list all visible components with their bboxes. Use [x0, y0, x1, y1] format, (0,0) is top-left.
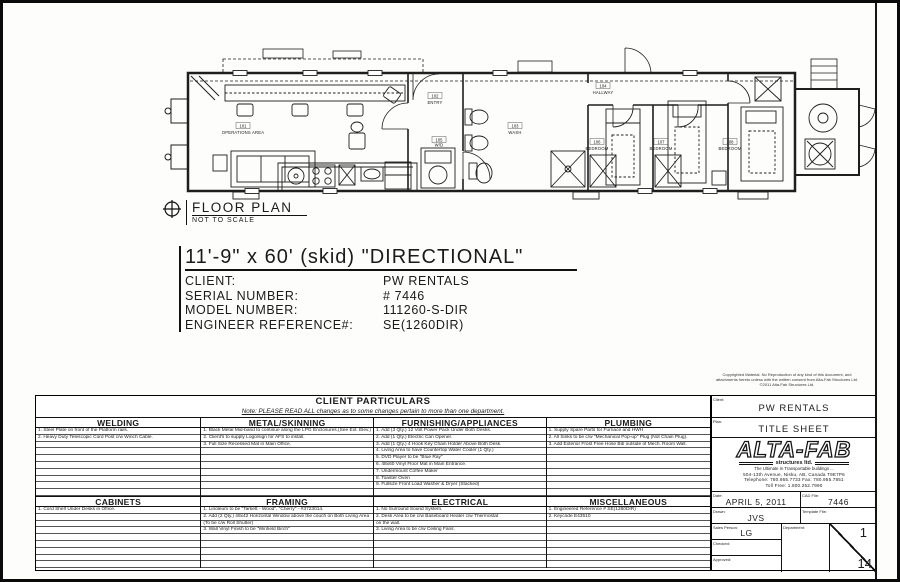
particulars-row: 3. Wall Vinyl Finish to be "Winfield Bir… [201, 527, 373, 534]
title-block-logo-row: ALTA-FAB structures ltd. The Ultimate In… [712, 438, 876, 492]
sheet-total: 14 [858, 556, 872, 571]
closets [590, 77, 781, 187]
particulars-row: 1. Cord Shelf Under Desks in Office. [36, 507, 200, 514]
section-header: CABINETS [36, 496, 200, 507]
field-row: SERIAL NUMBER: # 7446 [185, 289, 579, 304]
section-rows: 1. Add (3 Qty.) 12 Volt Power Pack Under… [374, 428, 546, 496]
section-rows: 1. Linoleum to be "Tarkett - Wood", "Che… [201, 507, 373, 568]
particulars-section-welding: WELDING 1. Steel Plate on front of the P… [36, 417, 200, 496]
floor-plan-drawing: 101 OPERATIONS AREA 102 ENTRY 103 WASH 1… [163, 43, 879, 223]
particulars-row: 1. No Surround Sound System. [374, 507, 546, 514]
particulars-note: Note: PLEASE READ ALL changes as to some… [36, 408, 710, 417]
room-number: 107 [658, 139, 666, 144]
particulars-row: 2. Add (1 Qty.) Electric Can Opener. [374, 435, 546, 442]
section-rows: 1. Engineered Reference # SE(1260DIR)2. … [547, 507, 710, 568]
section-header: WELDING [36, 417, 200, 428]
particulars-row [201, 489, 373, 496]
beds [606, 101, 783, 185]
particulars-row: 6. 48x60 Vinyl Floor Mat in Main Entranc… [374, 462, 546, 469]
particulars-row: 5. DVD Player to be "Blue Ray" [374, 455, 546, 462]
particulars-row [36, 482, 200, 489]
particulars-band-top: WELDING 1. Steel Plate on front of the P… [36, 417, 710, 496]
particulars-row [201, 455, 373, 462]
particulars-row: on the wall. [374, 521, 546, 528]
plan-scale-note: NOT TO SCALE [192, 216, 307, 225]
particulars-section-furnishing: FURNISHING/APPLIANCES 1. Add (3 Qty.) 12… [373, 417, 546, 496]
particulars-row [547, 541, 710, 548]
field-label: ENGINEER REFERENCE#: [185, 318, 383, 333]
field-value: PW RENTALS [383, 274, 469, 289]
bed-108 [741, 107, 783, 181]
stove [309, 165, 335, 187]
particulars-row [547, 462, 710, 469]
particulars-row [374, 555, 546, 562]
field-value: SE(1260DIR) [383, 318, 464, 333]
particulars-row: 4. Living Area to have Countertop Water … [374, 448, 546, 455]
sales-person-label: Sales Person: [713, 525, 738, 530]
checked-label: Checked: [713, 541, 730, 546]
particulars-row [36, 561, 200, 568]
washer-dryer-stack [421, 148, 455, 188]
particulars-row [201, 469, 373, 476]
particulars-row [201, 555, 373, 562]
particulars-row: 1. Linoleum to be "Tarkett - Wood", "Che… [201, 507, 373, 514]
particulars-section-framing: FRAMING 1. Linoleum to be "Tarkett - Woo… [200, 496, 373, 568]
particulars-row [374, 548, 546, 555]
particulars-row: 2. Heavy Duty Telescopic Cord Post c/w W… [36, 435, 200, 442]
particulars-row [36, 455, 200, 462]
room-number: 104 [600, 83, 608, 88]
logo-rule [739, 462, 773, 465]
room-labels: 101 OPERATIONS AREA 102 ENTRY 103 WASH 1… [222, 83, 742, 152]
particulars-row [547, 521, 710, 528]
room-number: 102 [432, 93, 440, 98]
sheet-number: 1 [860, 525, 867, 540]
bed-106 [606, 109, 640, 185]
sales-person-cell: Sales Person: LG [712, 524, 781, 540]
particulars-row [36, 541, 200, 548]
section-header: FURNISHING/APPLIANCES [374, 417, 546, 428]
particulars-section-miscellaneous: MISCELLANEOUS 1. Engineered Reference # … [546, 496, 710, 568]
field-label: SERIAL NUMBER: [185, 289, 383, 304]
section-rows: 1. Black Metal Mid-band to continue alon… [201, 428, 373, 496]
logo-rule [815, 462, 849, 465]
room-number: 106 [594, 139, 602, 144]
particulars-row [36, 442, 200, 449]
section-header: ELECTRICAL [374, 496, 546, 507]
room-name: WASH [508, 130, 521, 135]
department-label: Department: [783, 525, 805, 530]
title-block-drawn-row: Drawn: JVS Template File: [712, 508, 876, 524]
particulars-section-cabinets: CABINETS 1. Cord Shelf Under Desks in Of… [36, 496, 200, 568]
particulars-row [36, 548, 200, 555]
particulars-row [374, 561, 546, 568]
particulars-row [36, 476, 200, 483]
particulars-row [547, 548, 710, 555]
particulars-row [36, 527, 200, 534]
room-number: 108 [727, 139, 735, 144]
title-block: Client: PW RENTALS Plan: TITLE SHEET ALT… [711, 395, 877, 571]
particulars-row: 1. Add (3 Qty.) 12 Volt Power Pack Under… [374, 428, 546, 435]
particulars-row: 3. Full Size Recessed Mat in Main Office… [201, 442, 373, 449]
section-rows: 1. Cord Shelf Under Desks in Office. [36, 507, 200, 568]
copyright-line: ©2011 Alta-Fab Structures Ltd. [697, 382, 877, 387]
drawn-cell: Drawn: JVS [712, 508, 800, 523]
particulars-section-metal-skinning: METAL/SKINNING 1. Black Metal Mid-band t… [200, 417, 373, 496]
particulars-row [547, 561, 710, 568]
field-row: MODEL NUMBER: 111260-S-DIR [185, 303, 579, 318]
mech-room-equipment [805, 104, 837, 169]
plan-value: TITLE SHEET [712, 418, 876, 435]
particulars-row [201, 561, 373, 568]
kitchen [278, 162, 417, 190]
drawn-label: Drawn: [713, 509, 726, 514]
particulars-row: 1. Black Metal Mid-band to continue alon… [201, 428, 373, 435]
template-file-cell: Template File: [800, 508, 876, 523]
particulars-row [201, 462, 373, 469]
room-name: BEDROOM [718, 146, 741, 151]
plan-caption: FLOOR PLAN NOT TO SCALE [163, 200, 307, 225]
date-label: Date: [713, 493, 723, 498]
particulars-row [374, 489, 546, 496]
checked-cell: Checked: [712, 540, 781, 556]
altafab-logo: ALTA-FAB [737, 439, 852, 461]
sheet-title: 11'-9" x 60' (skid) "DIRECTIONAL" [185, 246, 577, 271]
particulars-row: 1. Steel Plate on front of the Platform … [36, 428, 200, 435]
particulars-row [201, 548, 373, 555]
field-row: CLIENT: PW RENTALS [185, 274, 579, 289]
particulars-section-plumbing: PLUMBING 1. Supply Spare Parts for Furna… [546, 417, 710, 496]
particulars-row [547, 455, 710, 462]
north-crosshair-icon [163, 200, 181, 218]
date-value: APRIL 5, 2011 [712, 492, 800, 507]
particulars-row [201, 482, 373, 489]
interior-walls [408, 74, 728, 190]
particulars-row: 1. Engineered Reference # SE(1260DIR) [547, 507, 710, 514]
particulars-row: 8. Toaster Oven [374, 476, 546, 483]
company-tollfree: Toll Free: 1.800.252.7990 [712, 483, 876, 489]
particulars-row: 9. Fullsize Front Load Washer & Dryer (S… [374, 482, 546, 489]
particulars-row [547, 534, 710, 541]
department-cell: Department: [782, 524, 830, 572]
template-file-label: Template File: [802, 509, 827, 514]
particulars-row: 3. Add (1 Qty.) 4 Hook Key Chain Holder … [374, 442, 546, 449]
roof-items [223, 49, 837, 89]
room-number: 101 [240, 123, 248, 128]
particulars-row [36, 514, 200, 521]
particulars-row: 3. Living Area to be c/w Ceiling Fans. [374, 527, 546, 534]
drawing-sheet: 101 OPERATIONS AREA 102 ENTRY 103 WASH 1… [0, 0, 900, 582]
field-row: ENGINEER REFERENCE#: SE(1260DIR) [185, 318, 579, 333]
particulars-row [374, 534, 546, 541]
room-name: HALLWAY [593, 90, 614, 95]
particulars-row [36, 534, 200, 541]
hitch-and-platform [165, 76, 219, 169]
title-block-bottom-rows: Sales Person: LG Checked: Approved: Depa… [712, 524, 876, 572]
title-block-date-row: Date: APRIL 5, 2011 CAD File: 7446 [712, 492, 876, 508]
particulars-row [547, 448, 710, 455]
particulars-title: CLIENT PARTICULARS [36, 396, 710, 408]
particulars-section-electrical: ELECTRICAL 1. No Surround Sound System.2… [373, 496, 546, 568]
client-label: Client: [713, 397, 724, 402]
room-name: BEDROOM [585, 146, 608, 151]
section-rows: 1. No Surround Sound System.2. Desk Area… [374, 507, 546, 568]
particulars-band-bottom: CABINETS 1. Cord Shelf Under Desks in Of… [36, 496, 710, 568]
particulars-row: 7. Undermount Coffee Maker [374, 469, 546, 476]
particulars-row [547, 555, 710, 562]
particulars-row [547, 489, 710, 496]
particulars-row: (To be c/w Roll Shutter) [201, 521, 373, 528]
title-block-plan-row: Plan: TITLE SHEET [712, 418, 876, 438]
room-name: W/D [435, 143, 444, 148]
room-number: 103 [512, 123, 520, 128]
bed-107 [668, 101, 706, 183]
particulars-row: 2. Desk Area to be c/w Baseboard Heater … [374, 514, 546, 521]
room-name: BEDROOM [649, 146, 672, 151]
particulars-row: 2. Add (2 Qty.) 48x42 Horizontal Window … [201, 514, 373, 521]
field-label: MODEL NUMBER: [185, 303, 383, 318]
fridge [385, 162, 411, 189]
cad-file-label: CAD File: [802, 493, 819, 498]
sheet-number-box: 1 14 [830, 524, 876, 572]
section-header: PLUMBING [547, 417, 710, 428]
particulars-row [36, 555, 200, 562]
room-name: OPERATIONS AREA [222, 130, 264, 135]
particulars-row [201, 534, 373, 541]
particulars-row [201, 476, 373, 483]
date-cell: Date: APRIL 5, 2011 [712, 492, 800, 507]
title-block-client-row: Client: PW RENTALS [712, 396, 876, 418]
approved-label: Approved: [713, 557, 731, 562]
room-name: ENTRY [427, 100, 442, 105]
client-particulars-table: CLIENT PARTICULARS Note: PLEASE READ ALL… [35, 395, 711, 571]
section-header: METAL/SKINNING [201, 417, 373, 428]
title-section: 11'-9" x 60' (skid) "DIRECTIONAL" CLIENT… [179, 246, 579, 332]
client-value: PW RENTALS [712, 396, 876, 414]
sheet-inner-border [875, 3, 877, 579]
particulars-row [36, 462, 200, 469]
field-value: # 7446 [383, 289, 425, 304]
field-label: CLIENT: [185, 274, 383, 289]
copyright-note: Copyrighted Material. No Reproduction of… [697, 372, 877, 387]
plan-caption-title: FLOOR PLAN [192, 200, 307, 216]
particulars-row [547, 527, 710, 534]
approved-cell: Approved: [712, 556, 781, 572]
particulars-row [374, 541, 546, 548]
particulars-row [201, 448, 373, 455]
plan-label: Plan: [713, 419, 722, 424]
particulars-row: 1. Supply Spare Parts for Furnace and HW… [547, 428, 710, 435]
particulars-row [36, 521, 200, 528]
particulars-row: 2. Client's to supply Logo/sign for AFS … [201, 435, 373, 442]
cad-file-cell: CAD File: 7446 [800, 492, 876, 507]
furnace [809, 104, 837, 132]
section-header: FRAMING [201, 496, 373, 507]
particulars-row [547, 482, 710, 489]
windows [233, 71, 717, 194]
particulars-row [547, 476, 710, 483]
section-header: MISCELLANEOUS [547, 496, 710, 507]
particulars-row [36, 489, 200, 496]
steps [233, 192, 768, 199]
particulars-row [36, 469, 200, 476]
particulars-row: 2. Keycode E43510 [547, 514, 710, 521]
particulars-row [547, 469, 710, 476]
section-rows: 1. Supply Spare Parts for Furnace and HW… [547, 428, 710, 496]
section-rows: 1. Steel Plate on front of the Platform … [36, 428, 200, 496]
field-value: 111260-S-DIR [383, 303, 468, 318]
washroom-fixtures [465, 109, 585, 187]
particulars-row: 2. All Sinks to be c/w "Mechanical Pop-u… [547, 435, 710, 442]
particulars-row: 3. Add Exterior Frost Free Hose Bib outs… [547, 442, 710, 449]
particulars-row [36, 448, 200, 455]
particulars-row [201, 541, 373, 548]
doors [382, 48, 875, 179]
